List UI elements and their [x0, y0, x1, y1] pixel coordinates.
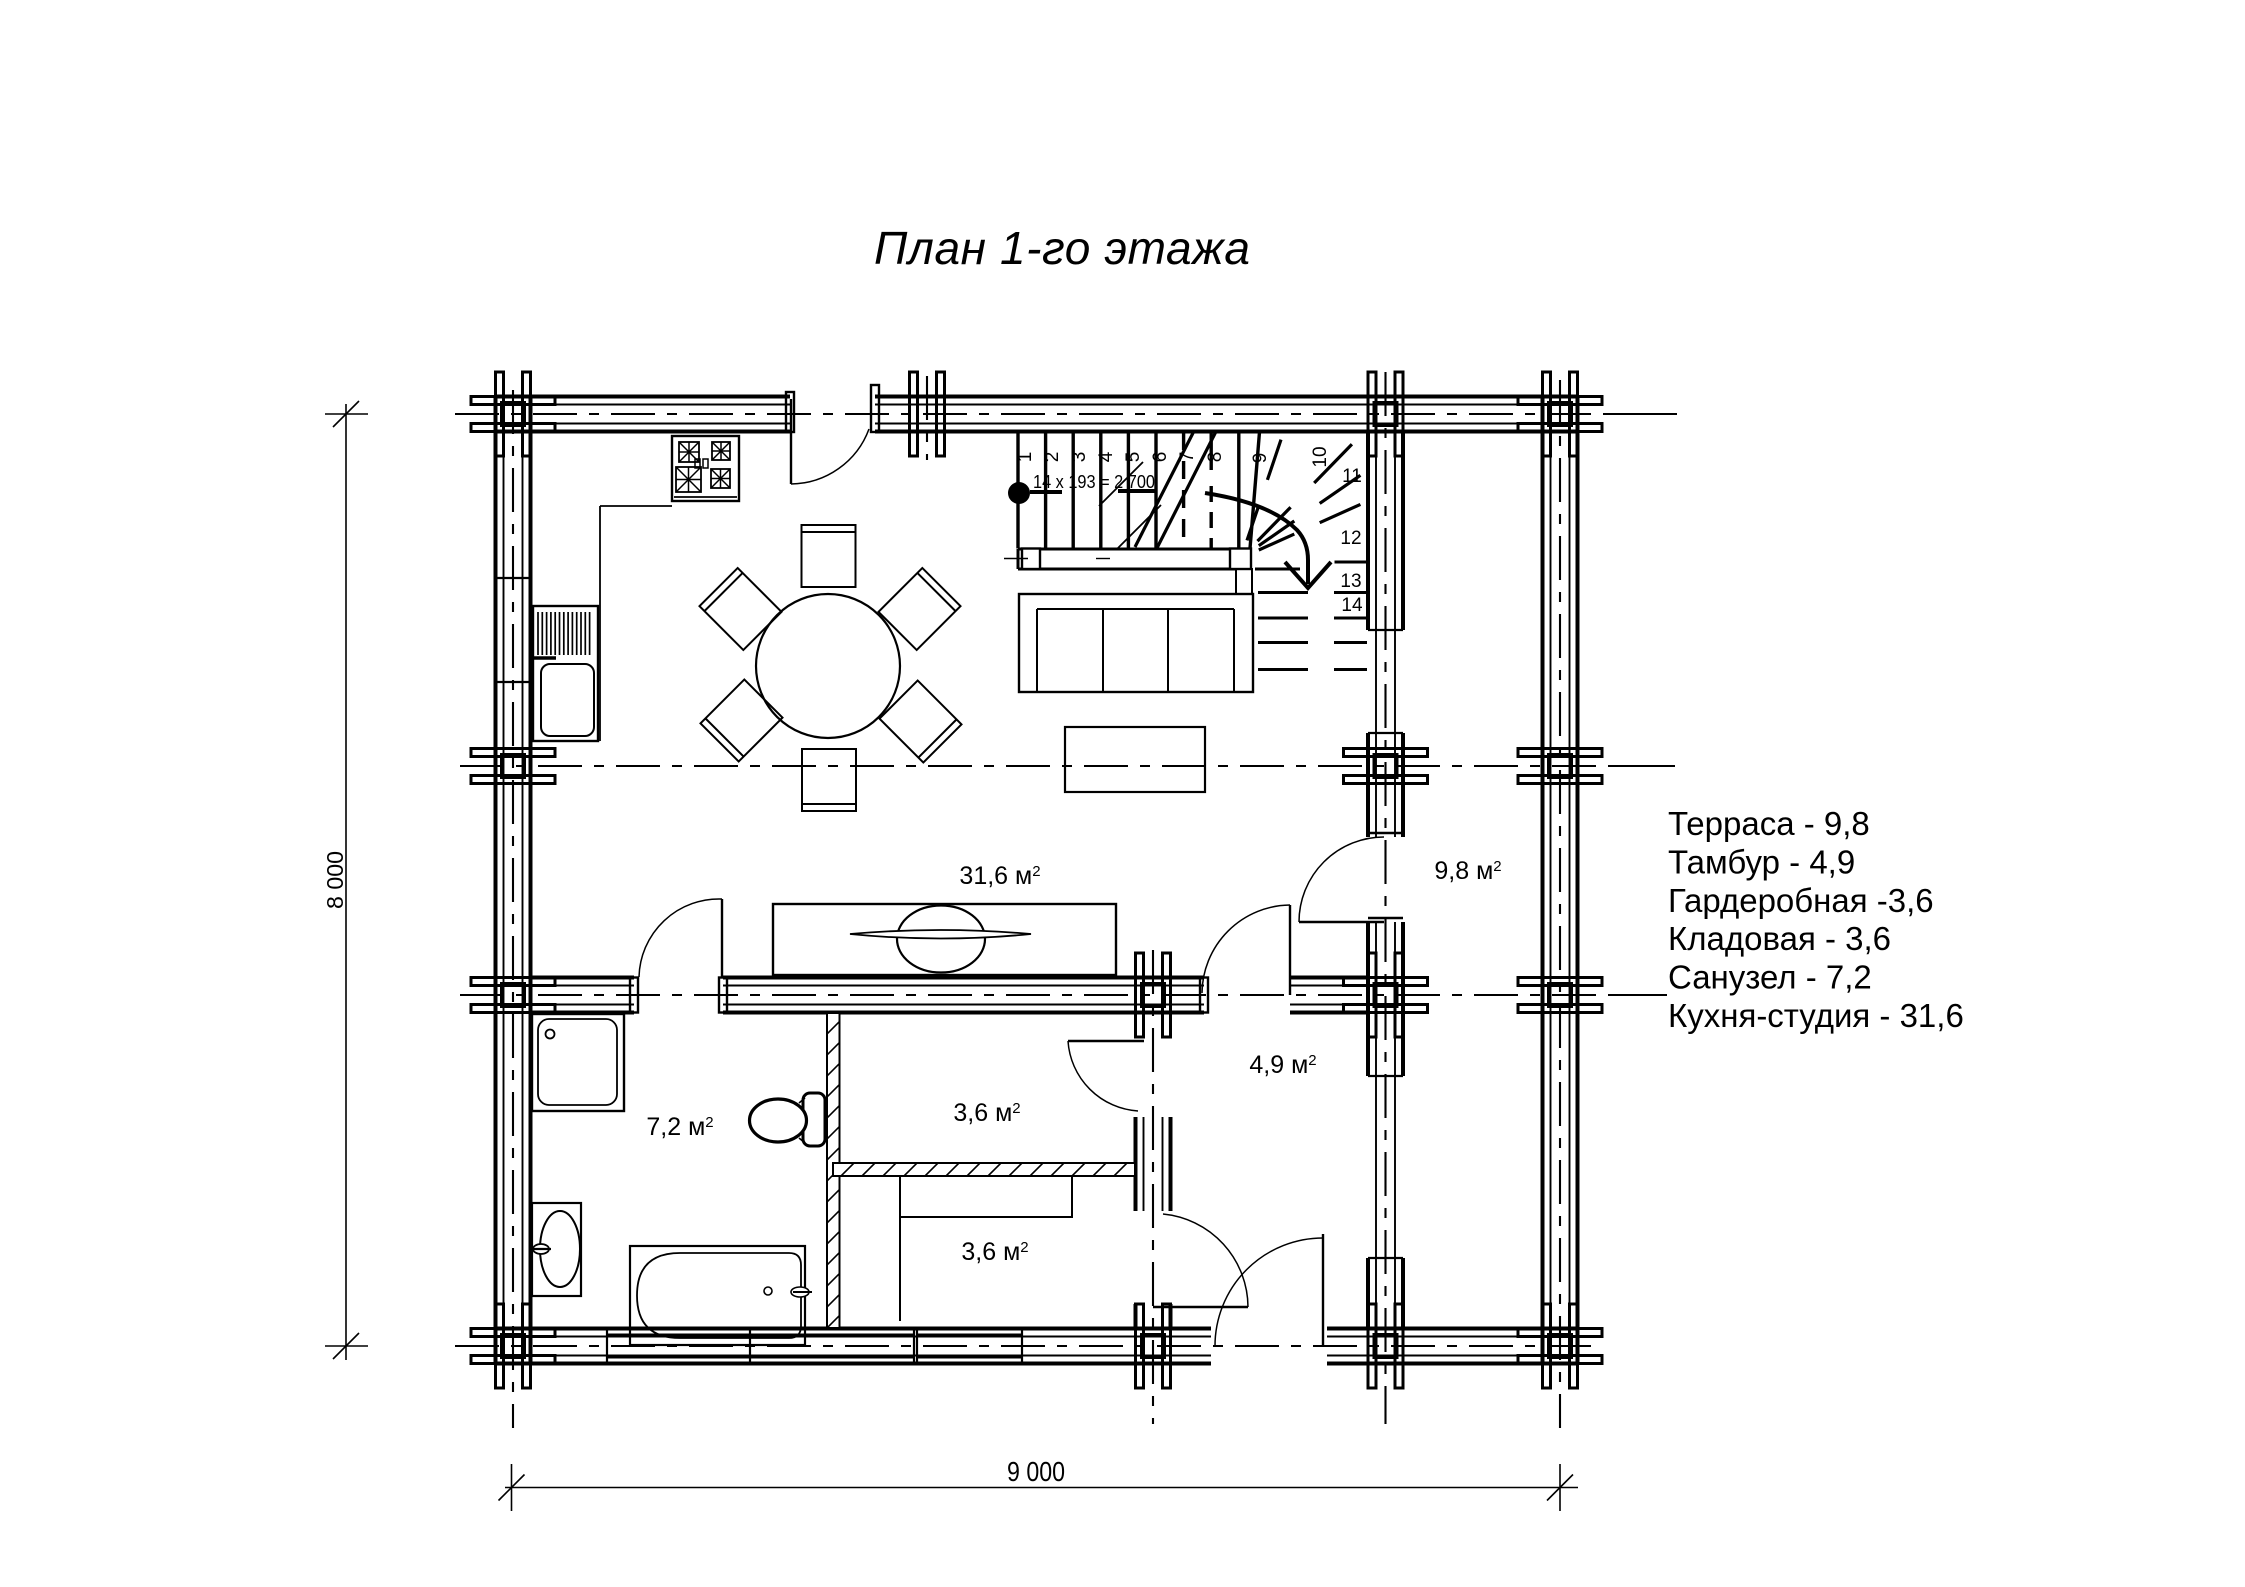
svg-text:13: 13 — [1340, 571, 1361, 592]
svg-text:План 1-го этажа: План 1-го этажа — [874, 222, 1250, 274]
svg-text:10: 10 — [1310, 446, 1331, 467]
svg-text:2: 2 — [1042, 452, 1063, 463]
svg-text:31,6 м2: 31,6 м2 — [959, 862, 1040, 890]
svg-text:8: 8 — [1205, 452, 1226, 463]
svg-text:Кладовая - 3,6: Кладовая - 3,6 — [1668, 920, 1891, 957]
svg-text:9 000: 9 000 — [1007, 1456, 1065, 1487]
svg-text:Гардеробная -3,6: Гардеробная -3,6 — [1668, 882, 1934, 919]
svg-text:4,9 м2: 4,9 м2 — [1249, 1051, 1316, 1079]
svg-text:3,6 м2: 3,6 м2 — [961, 1238, 1028, 1266]
svg-text:4: 4 — [1096, 451, 1117, 462]
svg-text:14: 14 — [1341, 595, 1363, 616]
svg-text:Кухня-студия - 31,6: Кухня-студия - 31,6 — [1668, 997, 1964, 1034]
svg-text:7: 7 — [1177, 452, 1198, 463]
svg-text:3,6 м2: 3,6 м2 — [953, 1099, 1020, 1127]
svg-text:11: 11 — [1342, 466, 1362, 487]
svg-text:Санузел - 7,2: Санузел - 7,2 — [1668, 959, 1872, 996]
svg-text:Тамбур - 4,9: Тамбур - 4,9 — [1668, 843, 1855, 880]
svg-text:8 000: 8 000 — [322, 851, 348, 909]
svg-text:Терраса - 9,8: Терраса - 9,8 — [1668, 805, 1870, 842]
svg-text:3: 3 — [1069, 452, 1090, 463]
svg-text:14 x 193 = 2 700: 14 x 193 = 2 700 — [1033, 472, 1155, 492]
svg-text:9: 9 — [1250, 453, 1271, 464]
svg-text:12: 12 — [1340, 528, 1361, 549]
svg-text:1: 1 — [1015, 452, 1036, 463]
svg-text:6: 6 — [1150, 452, 1171, 463]
svg-text:5: 5 — [1123, 452, 1144, 463]
svg-text:9,8 м2: 9,8 м2 — [1434, 857, 1501, 885]
svg-text:7,2 м2: 7,2 м2 — [646, 1113, 713, 1141]
